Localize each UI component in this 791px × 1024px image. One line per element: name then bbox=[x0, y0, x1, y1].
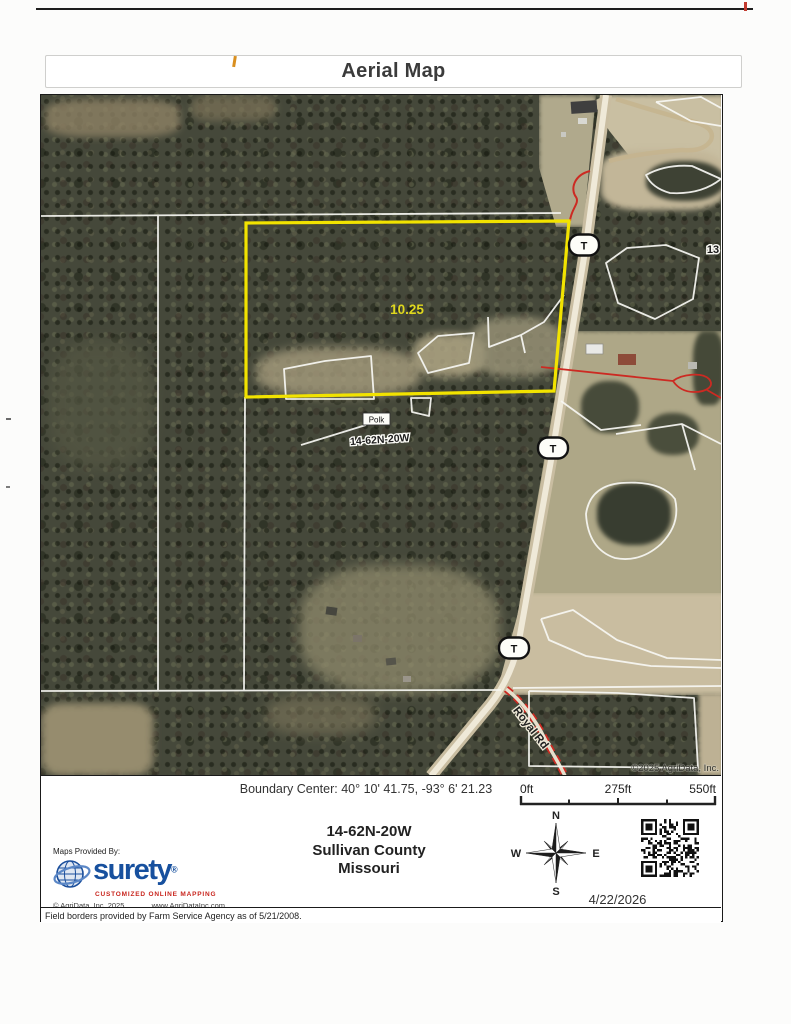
report-frame: 10.25 T T T 13 Polk bbox=[40, 94, 723, 922]
place-label: Polk bbox=[369, 416, 386, 425]
location-block: 14-62N-20W Sullivan County Missouri bbox=[259, 823, 479, 879]
scan-artifact-speck bbox=[6, 486, 10, 488]
scan-artifact-line bbox=[36, 8, 753, 10]
location-township: 14-62N-20W bbox=[259, 823, 479, 842]
location-state: Missouri bbox=[259, 860, 479, 879]
aerial-map: 10.25 T T T 13 Polk bbox=[41, 95, 721, 776]
red-loop bbox=[673, 375, 711, 392]
highway-t-road bbox=[431, 95, 606, 776]
compass-north-label: N bbox=[552, 810, 560, 822]
scan-artifact-speck bbox=[6, 418, 11, 420]
highway-marker-label: T bbox=[511, 644, 518, 656]
section-number-label: 13 bbox=[707, 244, 719, 256]
brand-tagline: CUSTOMIZED ONLINE MAPPING bbox=[95, 891, 238, 898]
compass-star bbox=[526, 823, 586, 883]
map-footer: Boundary Center: 40° 10' 41.75, -93° 6' … bbox=[41, 776, 721, 907]
scale-bar-line bbox=[520, 796, 716, 805]
place-label-group: Polk bbox=[363, 413, 390, 425]
acreage-label: 10.25 bbox=[390, 302, 424, 317]
disclaimer-bar: Field borders provided by Farm Service A… bbox=[41, 907, 721, 923]
highway-marker-1: T bbox=[569, 235, 599, 256]
highway-marker-3: T bbox=[499, 638, 529, 659]
scanned-map-sheet: Aerial Map bbox=[0, 0, 791, 1024]
surety-globe-icon bbox=[53, 857, 93, 893]
title-bar: Aerial Map bbox=[45, 55, 742, 88]
scale-bar: 0ft 275ft 550ft bbox=[514, 780, 722, 812]
field-borders bbox=[41, 97, 721, 768]
compass-west-label: W bbox=[511, 848, 522, 860]
brand-wordmark: surety® bbox=[93, 857, 178, 884]
dirt-path bbox=[609, 99, 712, 161]
brand-row: surety® bbox=[53, 857, 238, 893]
scale-tick-mid: 275ft bbox=[605, 782, 632, 796]
compass-east-label: E bbox=[592, 848, 599, 860]
highway-marker-2: T bbox=[538, 438, 568, 459]
scan-artifact-mark bbox=[744, 2, 747, 11]
compass-rose: N S W E bbox=[508, 809, 604, 899]
brand-name: surety bbox=[93, 854, 171, 886]
imagery-copyright-label: ©2025 AgriData, Inc. bbox=[631, 763, 719, 774]
location-county: Sullivan County bbox=[259, 842, 479, 861]
scale-tick-start: 0ft bbox=[520, 782, 534, 796]
provider-block: Maps Provided By: surety® CUSTOMIZED ONL bbox=[53, 847, 238, 910]
highway-marker-label: T bbox=[550, 444, 557, 456]
page-title: Aerial Map bbox=[341, 60, 445, 83]
compass-south-label: S bbox=[552, 886, 559, 898]
map-overlay-svg: 10.25 T T T 13 Polk bbox=[41, 95, 721, 776]
boundary-center-text: Boundary Center: 40° 10' 41.75, -93° 6' … bbox=[166, 782, 566, 796]
qr-code bbox=[641, 819, 699, 877]
registered-mark: ® bbox=[171, 865, 178, 875]
township-map-label: 14-62N-20W bbox=[350, 432, 410, 448]
map-date: 4/22/2026 bbox=[566, 892, 669, 907]
scale-tick-end: 550ft bbox=[689, 782, 716, 796]
disclaimer-text: Field borders provided by Farm Service A… bbox=[41, 911, 302, 921]
highway-marker-label: T bbox=[581, 241, 588, 253]
